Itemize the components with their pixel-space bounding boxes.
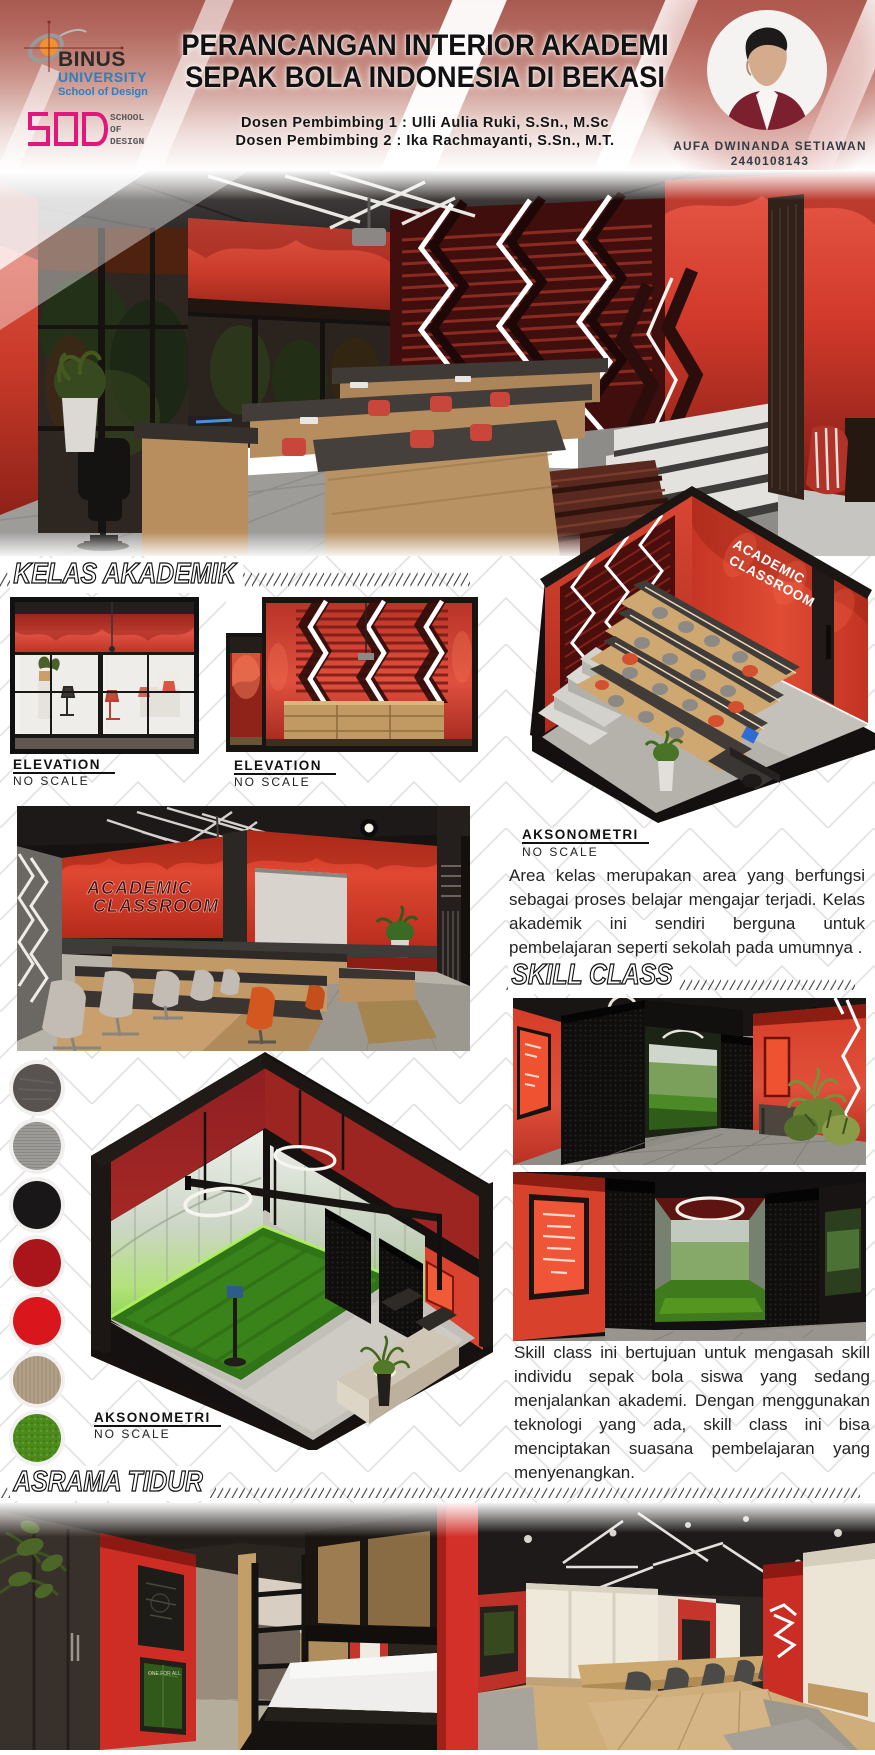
svg-text:CLASSROOM: CLASSROOM <box>93 896 219 916</box>
svg-text:ONE FOR ALL: ONE FOR ALL <box>148 1671 181 1677</box>
svg-text:ACADEMIC: ACADEMIC <box>86 878 192 898</box>
